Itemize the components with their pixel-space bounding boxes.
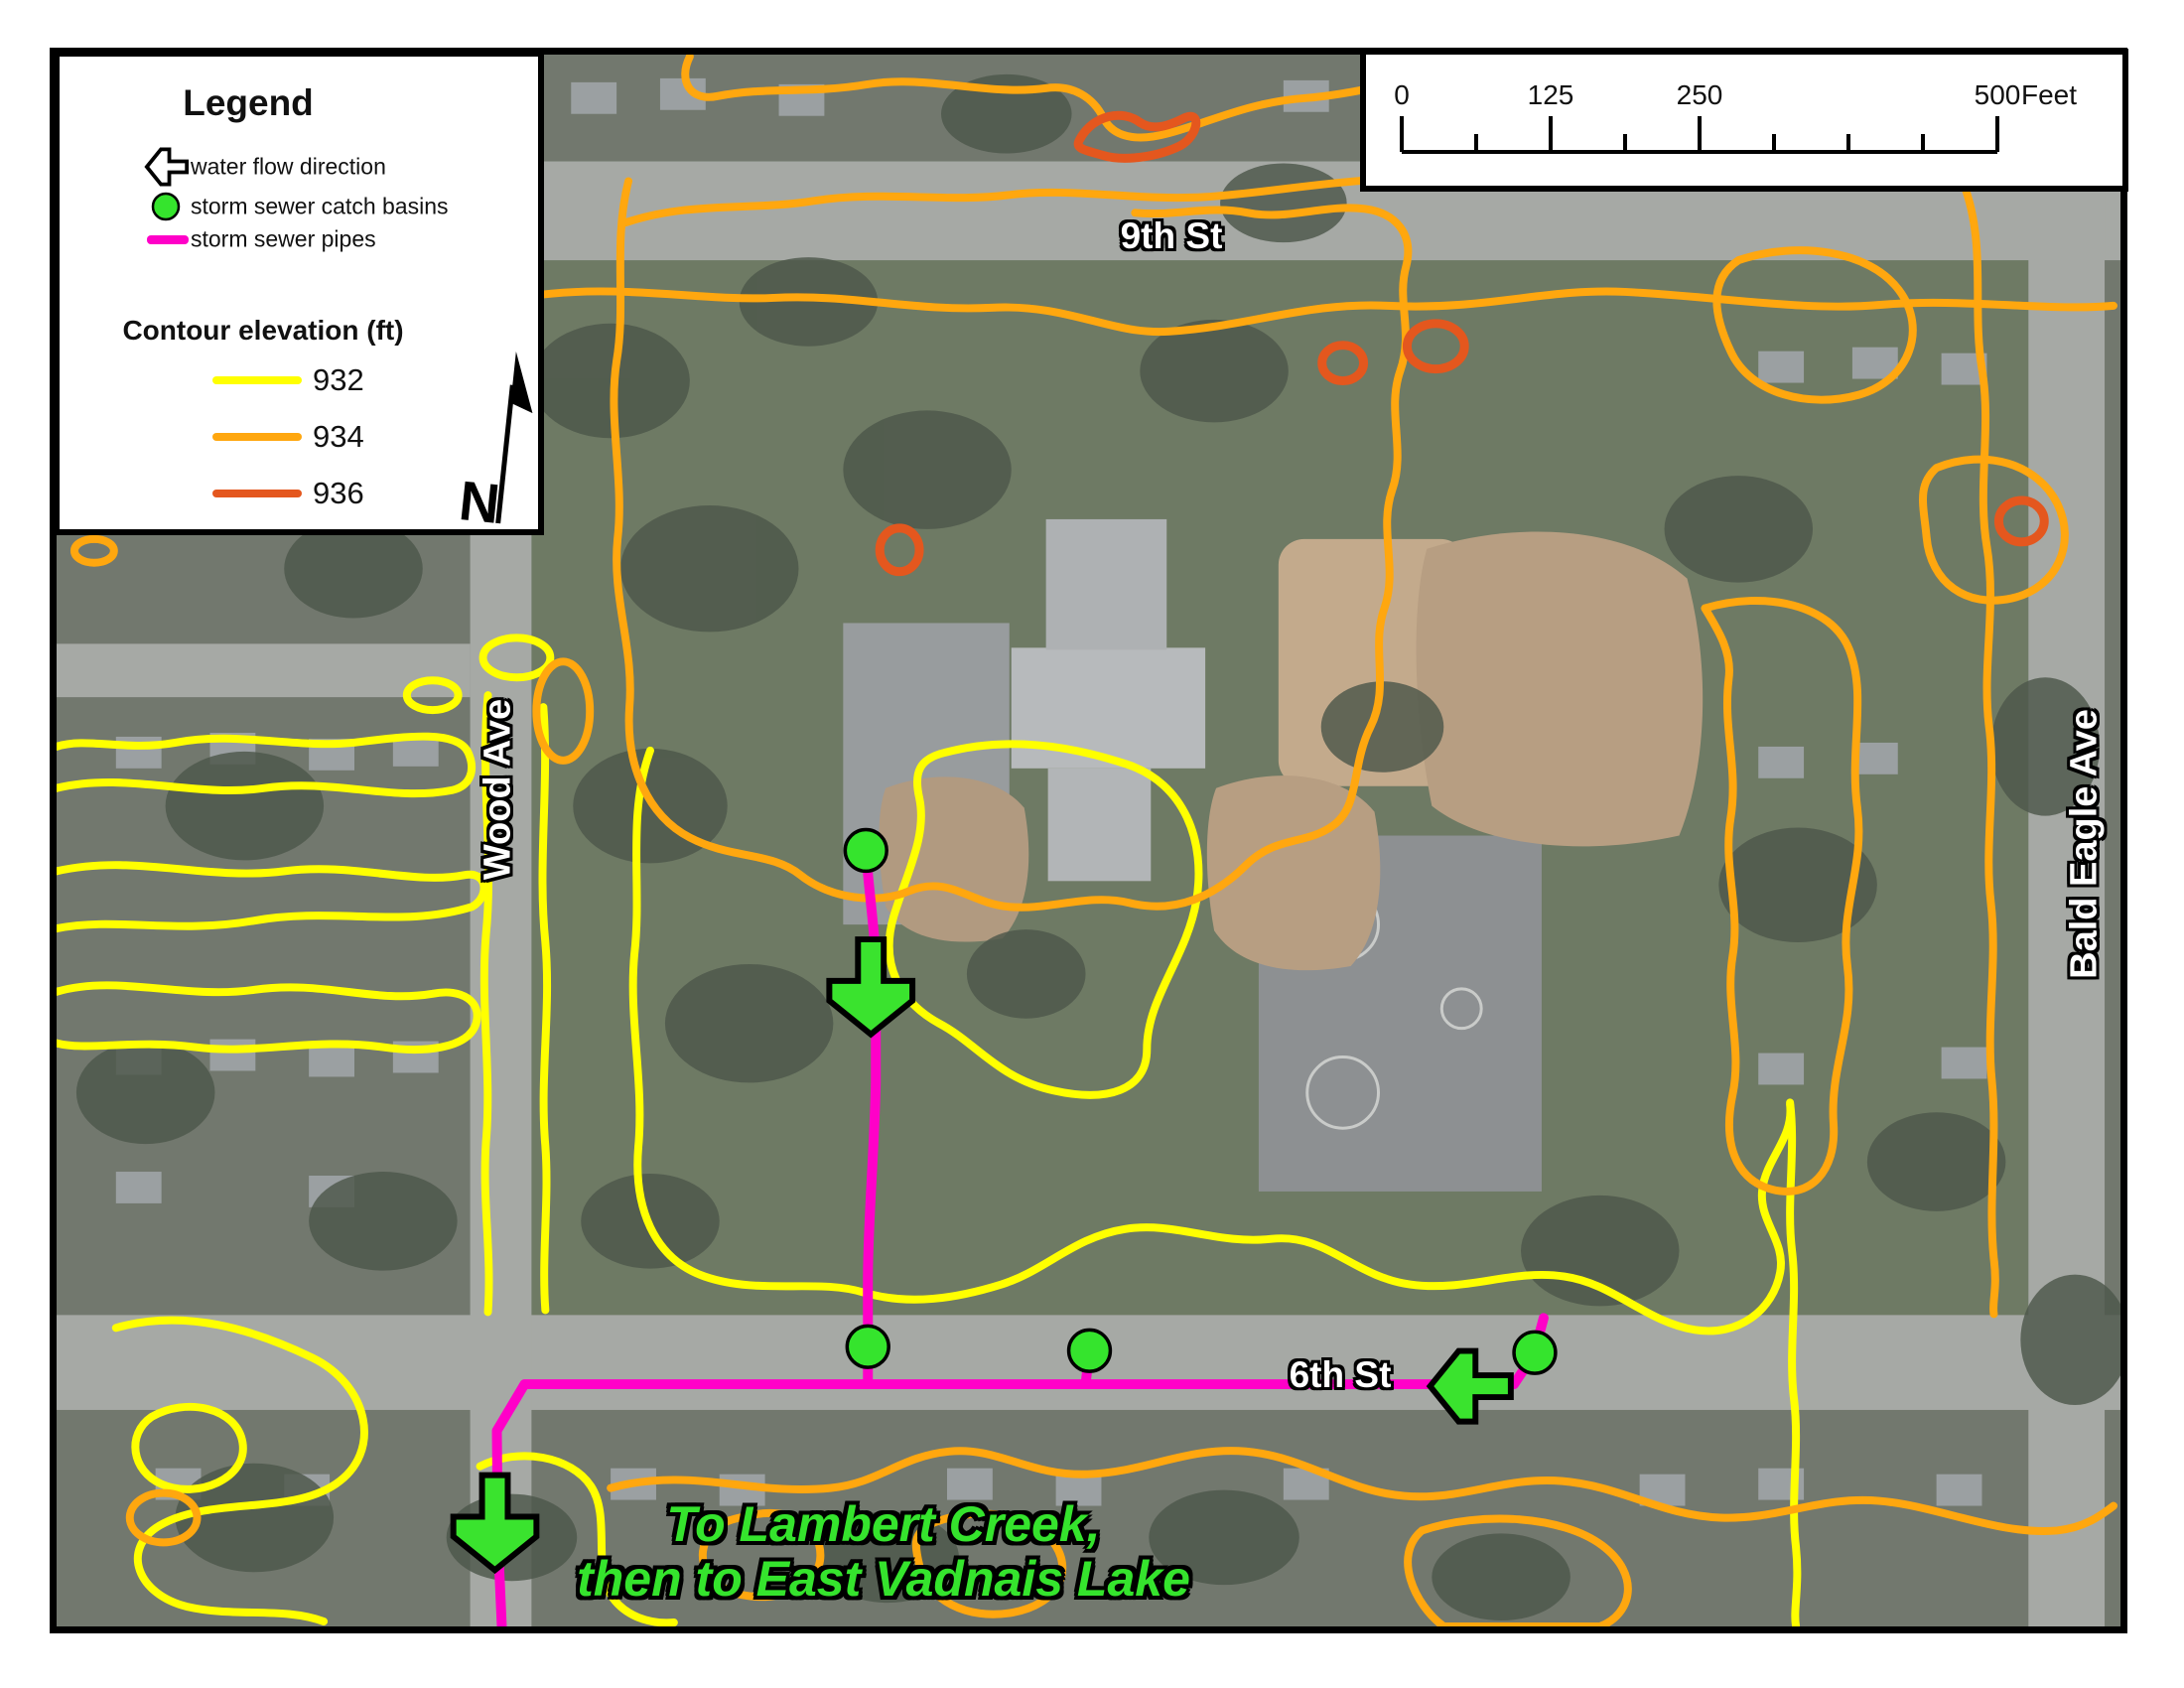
north-arrow: N bbox=[457, 348, 538, 529]
legend-label-pipes: storm sewer pipes bbox=[191, 226, 376, 253]
school-building-south-wing bbox=[1048, 769, 1152, 881]
legend-label-flow: water flow direction bbox=[191, 154, 386, 181]
contour-932-label: 932 bbox=[313, 362, 364, 398]
north-arrow-label: N bbox=[457, 469, 503, 529]
catch-basin-6th-east bbox=[1514, 1332, 1556, 1373]
pipe-line-icon bbox=[147, 235, 189, 244]
scale-bar-panel: 0 125 250 500 Feet bbox=[1360, 49, 2128, 192]
catch-basin-6th-west bbox=[847, 1326, 888, 1367]
contour-932-swatch bbox=[212, 376, 302, 384]
scale-unit-label: Feet bbox=[2021, 79, 2077, 110]
contour-heading: Contour elevation (ft) bbox=[99, 315, 427, 347]
street-label-wood-ave: Wood Ave bbox=[478, 699, 520, 880]
scale-tick-250: 250 bbox=[1677, 79, 1723, 110]
contour-936-label: 936 bbox=[313, 476, 364, 511]
legend-label-basins: storm sewer catch basins bbox=[191, 194, 448, 220]
scale-ticks bbox=[1402, 116, 1997, 152]
ball-field-small bbox=[879, 776, 1028, 941]
school-building-north-wing bbox=[1046, 519, 1167, 649]
street-label-9th-st: 9th St bbox=[1121, 215, 1223, 257]
contour-936-swatch bbox=[212, 490, 302, 497]
school-building-main bbox=[1012, 647, 1205, 768]
flow-destination-line2: then to East Vadnais Lake bbox=[577, 1552, 1190, 1607]
scale-bar: 0 125 250 500 Feet bbox=[1366, 55, 2122, 186]
scale-tick-125: 125 bbox=[1528, 79, 1574, 110]
legend-symbols: N bbox=[60, 57, 538, 529]
street-label-bald-eagle-ave: Bald Eagle Ave bbox=[2064, 709, 2107, 979]
ball-field-large bbox=[1417, 531, 1704, 846]
flow-destination-line1: To Lambert Creek, bbox=[577, 1497, 1190, 1552]
scale-tick-0: 0 bbox=[1394, 79, 1410, 110]
legend-panel: Legend N water flow direction storm sewe… bbox=[54, 51, 544, 535]
catch-basin-icon bbox=[153, 194, 179, 219]
page-canvas: { "legend": { "title": "Legend", "items"… bbox=[0, 0, 2184, 1688]
contour-934-label: 934 bbox=[313, 419, 364, 455]
flow-destination-note: To Lambert Creek, then to East Vadnais L… bbox=[577, 1497, 1190, 1607]
street-label-6th-st: 6th St bbox=[1290, 1354, 1392, 1396]
catch-basin-6th-mid bbox=[1069, 1330, 1111, 1371]
catch-basin-school bbox=[845, 830, 887, 872]
flow-arrow-icon bbox=[147, 149, 187, 184]
scale-tick-500: 500 bbox=[1975, 79, 2021, 110]
contour-934-swatch bbox=[212, 433, 302, 441]
